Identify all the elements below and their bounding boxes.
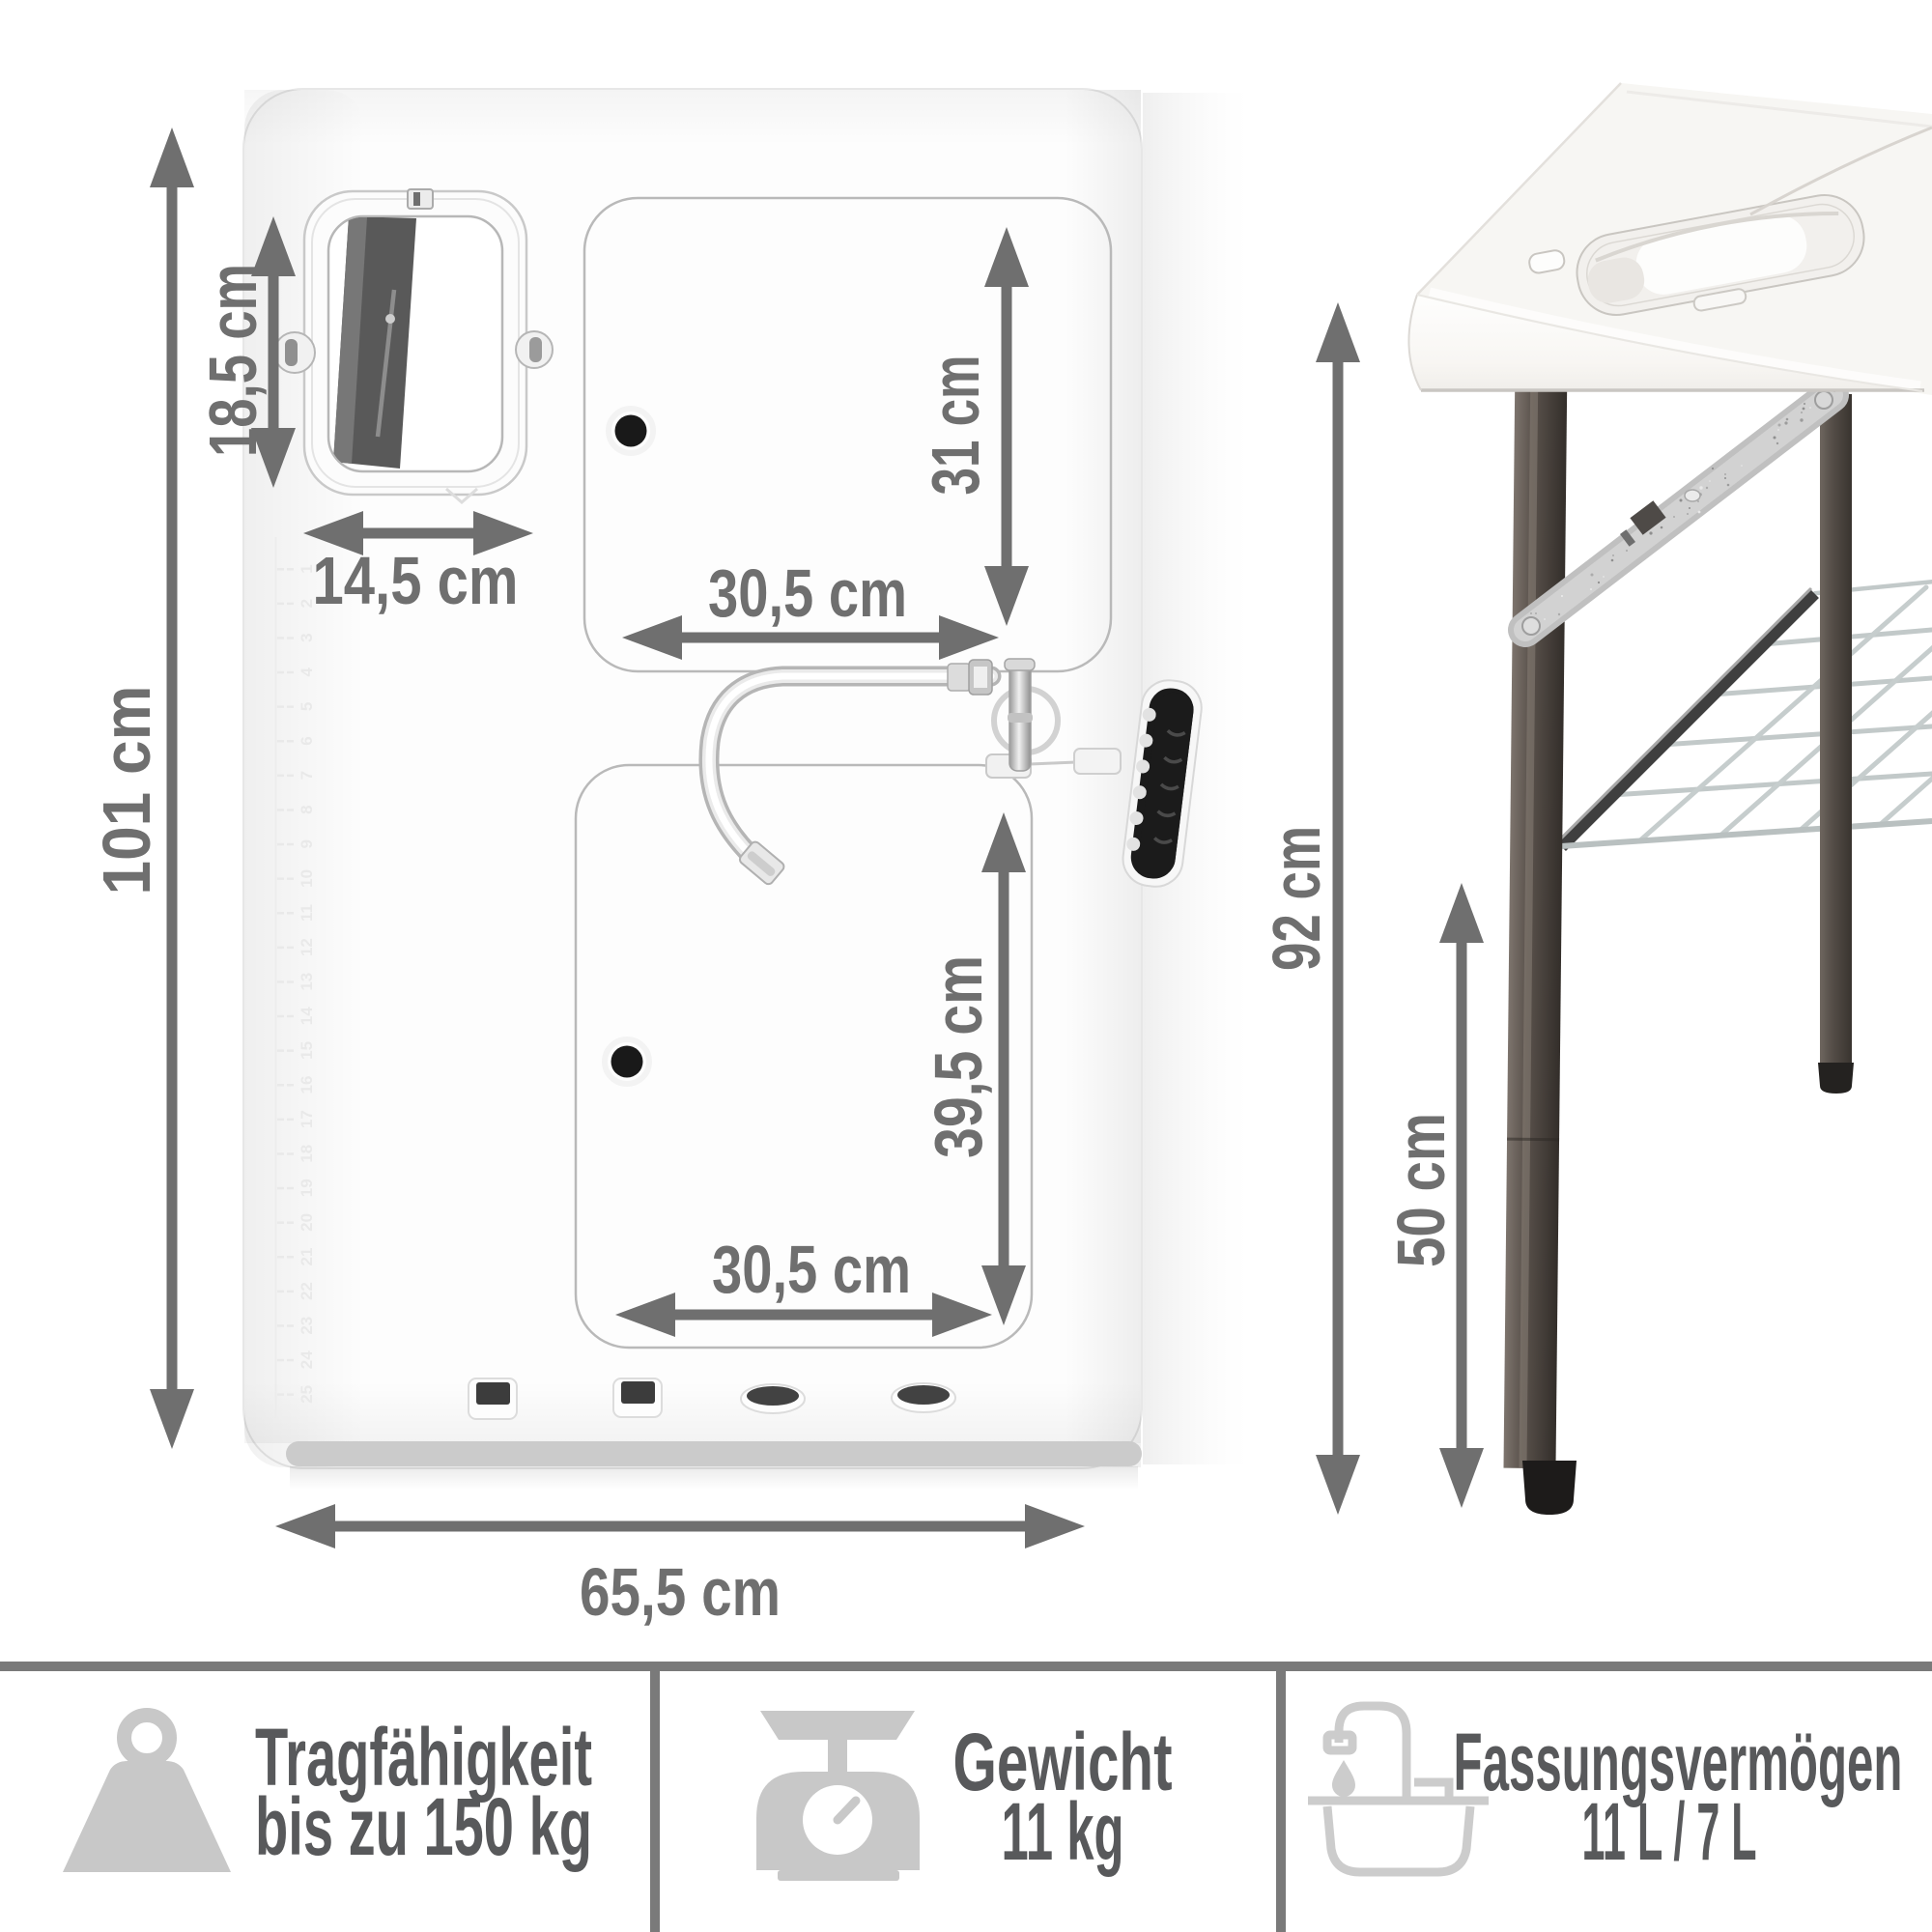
svg-text:22: 22 [298, 1282, 316, 1300]
svg-text:18,5 cm: 18,5 cm [195, 264, 270, 457]
svg-text:11 L / 7 L: 11 L / 7 L [1582, 1786, 1757, 1877]
svg-text:101 cm: 101 cm [89, 686, 164, 895]
svg-text:4: 4 [298, 668, 316, 677]
svg-text:14: 14 [298, 1007, 316, 1025]
svg-text:3: 3 [298, 633, 316, 641]
svg-text:31 cm: 31 cm [918, 355, 993, 496]
svg-text:bis zu 150 kg: bis zu 150 kg [255, 1781, 592, 1872]
svg-text:5: 5 [298, 702, 316, 711]
svg-text:24: 24 [298, 1350, 316, 1369]
svg-text:8: 8 [298, 805, 316, 813]
svg-text:6: 6 [298, 736, 316, 745]
svg-text:7: 7 [298, 771, 316, 780]
svg-text:30,5 cm: 30,5 cm [708, 555, 907, 631]
svg-text:16: 16 [298, 1076, 316, 1094]
svg-text:12: 12 [298, 938, 316, 956]
svg-text:13: 13 [298, 973, 316, 991]
svg-text:9: 9 [298, 839, 316, 848]
svg-text:14,5 cm: 14,5 cm [313, 543, 519, 618]
svg-text:39,5 cm: 39,5 cm [921, 955, 996, 1158]
svg-text:50 cm: 50 cm [1383, 1113, 1459, 1267]
svg-text:15: 15 [298, 1041, 316, 1060]
svg-text:18: 18 [298, 1145, 316, 1163]
svg-text:10: 10 [298, 869, 316, 888]
svg-text:23: 23 [298, 1317, 316, 1335]
svg-text:11: 11 [298, 904, 316, 922]
svg-text:11 kg: 11 kg [1002, 1786, 1124, 1877]
svg-text:25: 25 [298, 1385, 316, 1404]
svg-text:21: 21 [298, 1248, 316, 1266]
svg-text:19: 19 [298, 1179, 316, 1197]
svg-text:65,5 cm: 65,5 cm [580, 1554, 781, 1630]
svg-text:20: 20 [298, 1213, 316, 1232]
svg-text:30,5 cm: 30,5 cm [712, 1232, 911, 1307]
svg-text:17: 17 [298, 1110, 316, 1128]
svg-text:92 cm: 92 cm [1259, 826, 1334, 971]
